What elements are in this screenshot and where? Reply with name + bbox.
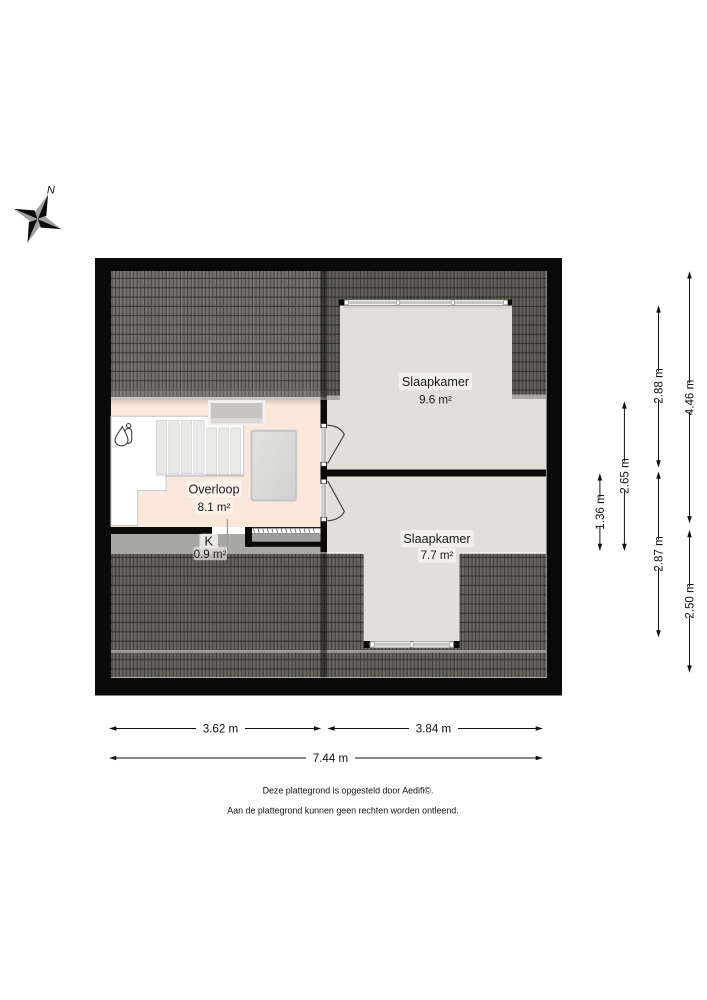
svg-text:K: K [204,534,213,548]
svg-text:2.87 m: 2.87 m [653,536,666,571]
svg-text:2.65 m: 2.65 m [618,458,631,493]
svg-text:Overloop: Overloop [188,483,239,497]
svg-text:3.62 m: 3.62 m [203,723,238,736]
svg-text:8.1 m²: 8.1 m² [198,501,231,514]
svg-text:9.6 m²: 9.6 m² [419,394,452,407]
svg-text:Slaapkamer: Slaapkamer [403,532,470,546]
svg-text:2.88 m: 2.88 m [653,368,666,403]
svg-text:N: N [47,185,55,197]
svg-text:7.7 m²: 7.7 m² [421,549,454,562]
svg-text:4.46 m: 4.46 m [684,380,697,415]
svg-text:1.36 m: 1.36 m [594,494,607,529]
svg-text:7.44 m: 7.44 m [313,752,348,765]
svg-text:2.50 m: 2.50 m [684,583,697,618]
svg-text:3.84 m: 3.84 m [416,723,451,736]
svg-text:Slaapkamer: Slaapkamer [402,375,469,389]
svg-text:Aan de plattegrond kunnen geen: Aan de plattegrond kunnen geen rechten w… [227,806,458,816]
svg-text:Deze plattegrond is opgesteld: Deze plattegrond is opgesteld door Aedif… [263,786,434,796]
svg-text:0.9 m²: 0.9 m² [194,548,227,561]
